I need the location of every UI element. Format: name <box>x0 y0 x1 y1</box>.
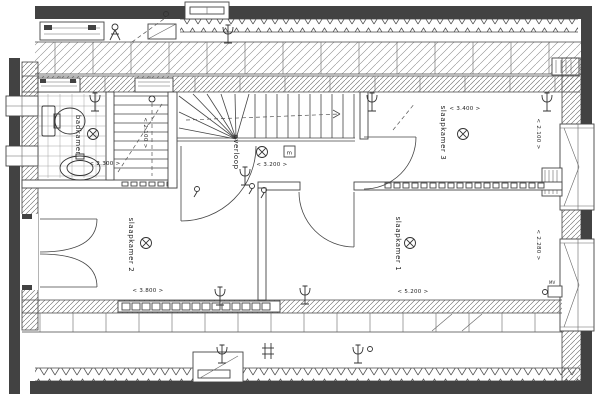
room-label-overloop: overloop <box>232 134 240 169</box>
room-label-slaapkamer-3: slaapkamer 3 <box>439 106 447 161</box>
meter-cupboard-label: m <box>287 151 293 157</box>
dimension-overloop-width: < 3.200 > <box>256 162 287 168</box>
dimension-slaapkamer-1-depth: < 2.280 > <box>535 229 541 260</box>
room-label-badkamer: badkamer <box>74 115 82 155</box>
mv-label: MV <box>549 280 555 285</box>
dimension-slaapkamer-1-width: < 5.200 > <box>397 289 428 295</box>
meter-cupboard: m <box>284 146 295 157</box>
outer-wall-bottom <box>30 381 592 394</box>
knee-wall-bottom <box>22 300 562 313</box>
room-label-slaapkamer-2: slaapkamer 2 <box>127 218 135 273</box>
eave-cabinet <box>40 22 104 40</box>
floor-plan-drawing: MV m badkamer overloop slaapkamer 3 slaa… <box>0 0 600 400</box>
knee-wall-cabinet <box>135 78 173 92</box>
knee-wall-top <box>22 76 580 92</box>
room-label-slaapkamer-1: slaapkamer 1 <box>394 217 402 272</box>
wall-slk2-slk1 <box>258 188 266 300</box>
stairwell-wall-east <box>168 92 177 188</box>
floor-plan: MV m badkamer overloop slaapkamer 3 slaa… <box>0 0 600 400</box>
outer-wall-top <box>35 6 592 19</box>
dimension-stairs-depth: < 2.100 > <box>142 117 148 148</box>
dimension-slaapkamer-2-width: < 3.800 > <box>132 288 163 294</box>
dimension-slaapkamer-3-width: < 3.400 > <box>449 106 480 112</box>
wall-overloop-slk3 <box>360 92 368 139</box>
insulation-band-bottom <box>35 368 580 381</box>
dimension-badkamer-width: < 2.300 > <box>89 161 120 167</box>
insulation-band-top <box>180 19 578 32</box>
dimension-slaapkamer-3-depth: < 2.100 > <box>535 118 541 149</box>
window-right-2 <box>560 239 594 331</box>
window-right-1 <box>560 124 594 210</box>
